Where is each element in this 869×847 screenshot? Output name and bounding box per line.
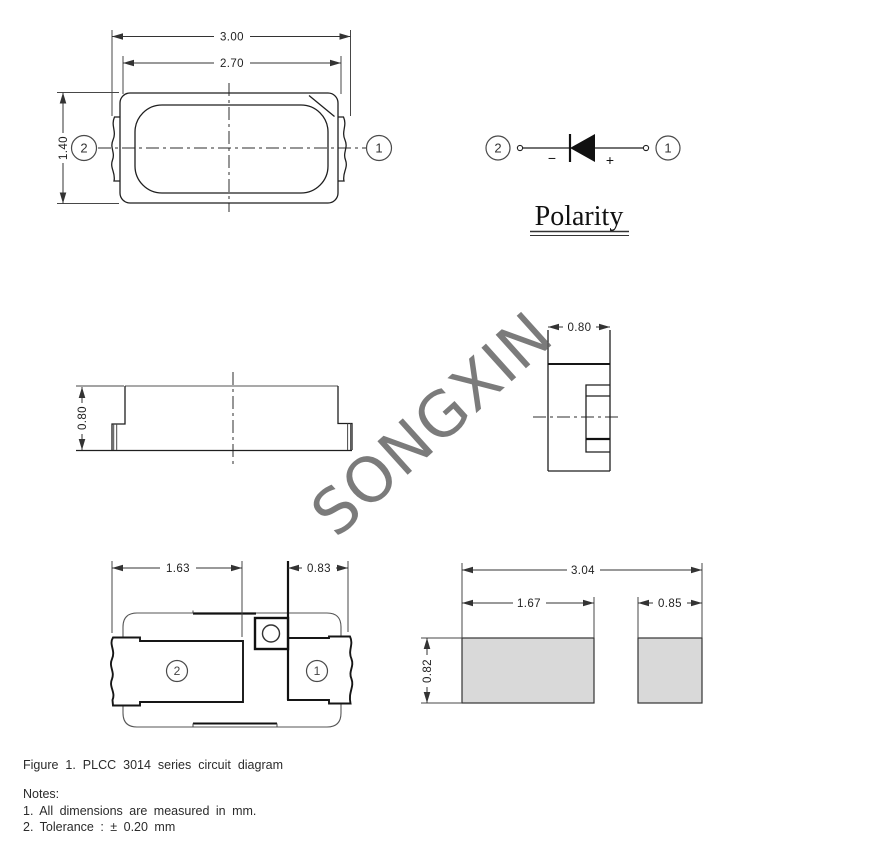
body-right-profile <box>338 386 352 450</box>
bottom-view: 2 1 1.63 0.83 <box>111 561 352 727</box>
terminal-dot <box>517 145 522 150</box>
datasheet-figure: 3.00 2.70 1.40 2 1 2 1 − + Polarity <box>0 0 869 847</box>
pin1-label: 1 <box>664 141 671 156</box>
polarity-chamfer-line <box>309 96 335 117</box>
notes-title: Notes: <box>23 787 59 801</box>
lens-cavity-outline <box>135 105 328 193</box>
dimension-label: 3.00 <box>220 32 244 44</box>
polarity-schematic: 2 1 − + Polarity <box>486 134 680 236</box>
dimension-label: 3.04 <box>571 565 595 577</box>
minus-sign: − <box>548 150 556 166</box>
figure-caption: Figure 1. PLCC 3014 series circuit diagr… <box>23 758 283 772</box>
pin2-label: 2 <box>174 664 181 678</box>
dimension-label: 0.80 <box>77 406 89 430</box>
dimension-label: 1.67 <box>517 598 541 610</box>
note-tolerance: 2. Tolerance : ± 0.20 mm <box>23 820 175 834</box>
dimension-label: 0.82 <box>422 659 434 683</box>
drawing-canvas: 3.00 2.70 1.40 2 1 2 1 − + Polarity <box>0 0 869 847</box>
top-view: 3.00 2.70 1.40 2 1 <box>57 30 392 212</box>
side-view: 0.80 <box>76 372 352 464</box>
diode-triangle <box>570 134 595 162</box>
right-lead-outline <box>338 117 346 181</box>
solder-pad-layout: 3.04 1.67 0.85 0.82 <box>421 563 702 703</box>
cathode-mark-square <box>255 618 288 649</box>
dimension-label: 1.63 <box>166 563 190 575</box>
pin1-label: 1 <box>375 141 382 156</box>
terminal-dot <box>643 145 648 150</box>
dimension-label: 0.85 <box>658 598 682 610</box>
end-view: 0.80 <box>533 322 619 471</box>
pin2-label: 2 <box>80 141 87 156</box>
pin2-label: 2 <box>494 141 501 156</box>
plus-sign: + <box>606 152 614 168</box>
polarity-title: Polarity <box>535 201 624 232</box>
dimension-label: 2.70 <box>220 58 244 70</box>
dimension-label: 1.40 <box>58 136 70 160</box>
left-lead-outline <box>112 117 120 181</box>
solder-pad-right <box>638 638 702 703</box>
lead-tab-outline <box>586 385 610 452</box>
pin1-label: 1 <box>314 664 321 678</box>
note-dimensions: 1. All dimensions are measured in mm. <box>23 804 256 818</box>
dimension-label: 0.83 <box>307 563 331 575</box>
dimension-label: 0.80 <box>568 322 592 334</box>
solder-pad-left <box>462 638 594 703</box>
